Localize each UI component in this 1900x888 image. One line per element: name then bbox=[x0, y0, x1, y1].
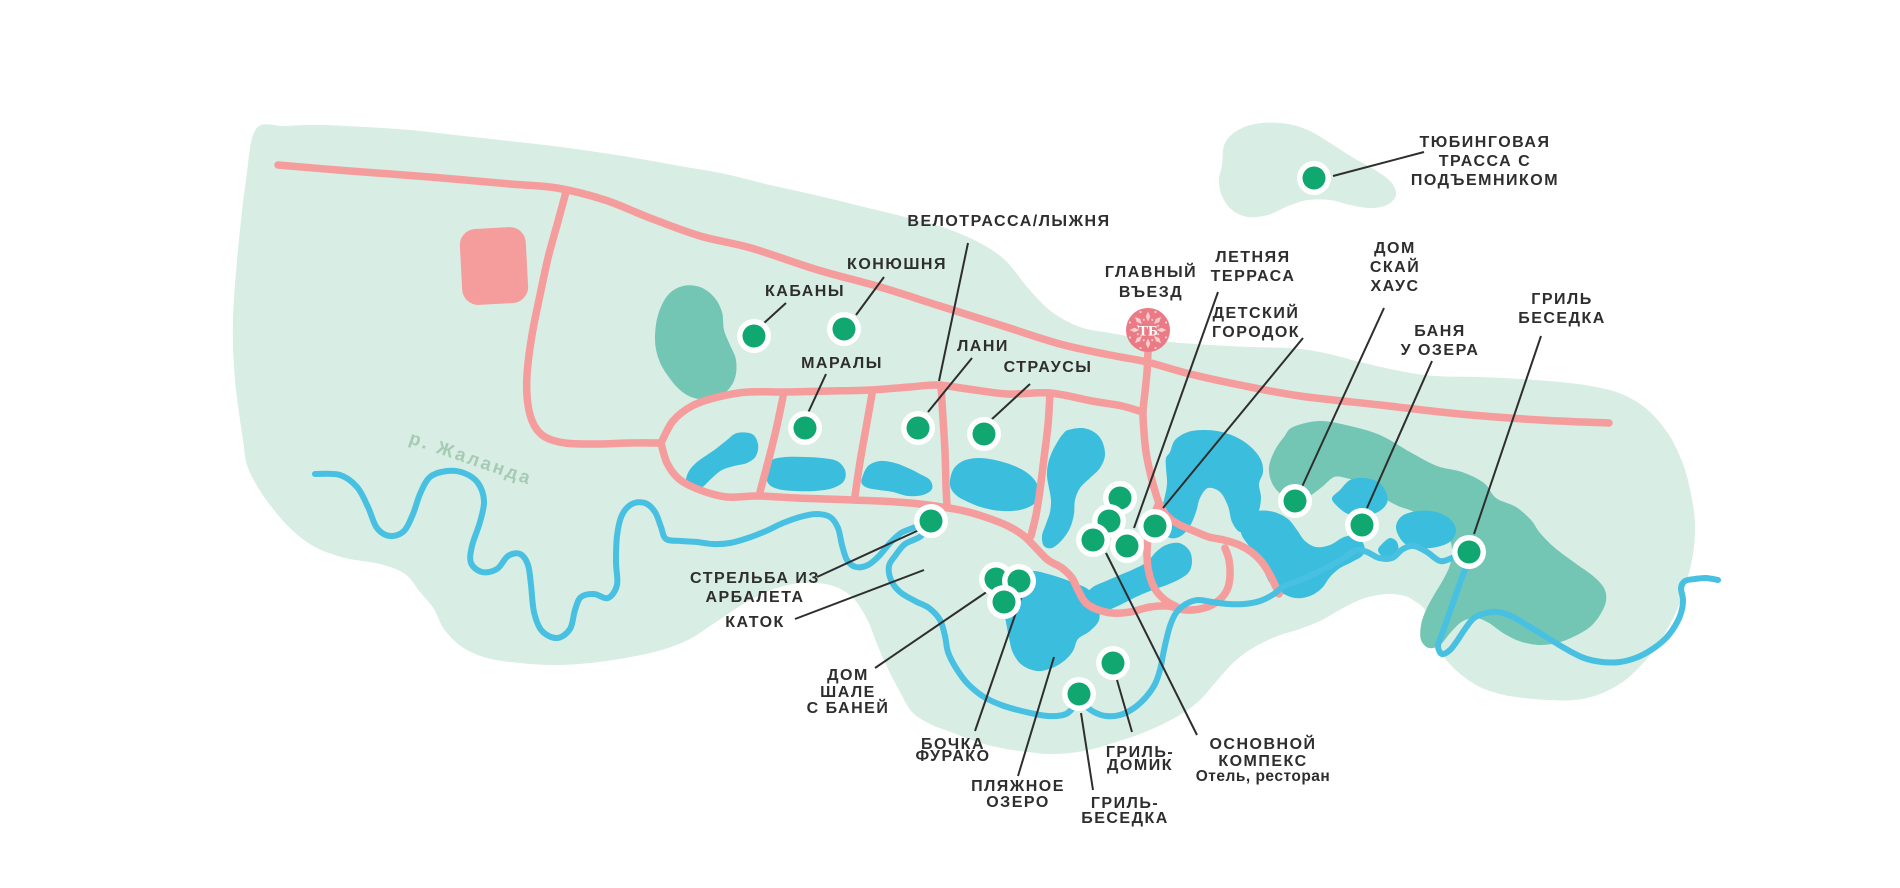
svg-text:ДОМ: ДОМ bbox=[1374, 240, 1416, 257]
svg-text:АРБАЛЕТА: АРБАЛЕТА bbox=[705, 589, 804, 606]
svg-text:ТРАССА С: ТРАССА С bbox=[1439, 153, 1531, 170]
svg-text:СТРАУСЫ: СТРАУСЫ bbox=[1004, 359, 1093, 376]
svg-text:БАНЯ: БАНЯ bbox=[1414, 323, 1466, 340]
svg-text:ДОМ: ДОМ bbox=[827, 667, 869, 684]
svg-text:МАРАЛЫ: МАРАЛЫ bbox=[801, 355, 883, 372]
svg-text:ОЗЕРО: ОЗЕРО bbox=[986, 794, 1050, 811]
svg-text:ШАЛЕ: ШАЛЕ bbox=[820, 684, 876, 701]
svg-text:БЕСЕДКА: БЕСЕДКА bbox=[1518, 310, 1606, 327]
svg-text:СТРЕЛЬБА ИЗ: СТРЕЛЬБА ИЗ bbox=[690, 570, 820, 587]
svg-text:ГОРОДОК: ГОРОДОК bbox=[1212, 324, 1300, 341]
svg-text:ФУРАКО: ФУРАКО bbox=[915, 748, 990, 765]
svg-text:ТЮБИНГОВАЯ: ТЮБИНГОВАЯ bbox=[1420, 134, 1551, 151]
svg-text:ГРИЛЬ: ГРИЛЬ bbox=[1531, 291, 1592, 308]
svg-text:КОНЮШНЯ: КОНЮШНЯ bbox=[847, 256, 947, 273]
svg-text:КАБАНЫ: КАБАНЫ bbox=[765, 283, 845, 300]
svg-text:ДОМИК: ДОМИК bbox=[1107, 757, 1173, 774]
svg-text:Отель, ресторан: Отель, ресторан bbox=[1196, 768, 1331, 785]
svg-text:ВЪЕЗД: ВЪЕЗД bbox=[1119, 284, 1183, 301]
svg-text:ВЕЛОТРАССА/ЛЫЖНЯ: ВЕЛОТРАССА/ЛЫЖНЯ bbox=[907, 213, 1110, 230]
svg-text:ТЕРРАСА: ТЕРРАСА bbox=[1211, 268, 1296, 285]
svg-text:ЛЕТНЯЯ: ЛЕТНЯЯ bbox=[1215, 249, 1290, 266]
svg-text:С БАНЕЙ: С БАНЕЙ bbox=[807, 698, 890, 717]
svg-text:ПОДЪЕМНИКОМ: ПОДЪЕМНИКОМ bbox=[1411, 172, 1559, 189]
svg-text:ТБ: ТБ bbox=[1138, 324, 1158, 340]
svg-text:БЕСЕДКА: БЕСЕДКА bbox=[1081, 810, 1169, 827]
svg-text:ЛАНИ: ЛАНИ bbox=[957, 338, 1009, 355]
svg-text:СКАЙ: СКАЙ bbox=[1370, 257, 1420, 276]
svg-text:КАТОК: КАТОК bbox=[725, 614, 785, 631]
svg-text:ПЛЯЖНОЕ: ПЛЯЖНОЕ bbox=[971, 778, 1065, 795]
svg-text:ХАУС: ХАУС bbox=[1370, 278, 1419, 295]
svg-text:ОСНОВНОЙ: ОСНОВНОЙ bbox=[1209, 734, 1316, 753]
svg-text:У ОЗЕРА: У ОЗЕРА bbox=[1401, 342, 1480, 359]
svg-text:ДЕТСКИЙ: ДЕТСКИЙ bbox=[1213, 303, 1300, 322]
svg-text:ГЛАВНЫЙ: ГЛАВНЫЙ bbox=[1105, 262, 1197, 281]
